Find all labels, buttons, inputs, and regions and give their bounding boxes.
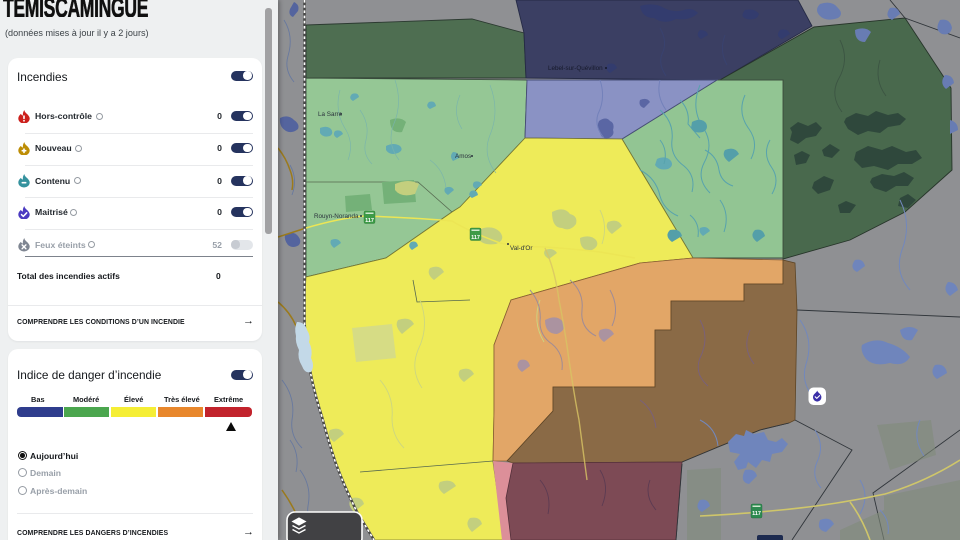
svg-text:Amos: Amos: [455, 153, 471, 160]
svg-text:117: 117: [471, 235, 480, 241]
svg-text:117: 117: [752, 511, 761, 517]
svg-text:La Sarre: La Sarre: [318, 111, 343, 118]
svg-text:Val-d'Or: Val-d'Or: [510, 245, 532, 252]
svg-text:Rouyn-Noranda: Rouyn-Noranda: [314, 213, 359, 220]
svg-text:117: 117: [365, 218, 374, 224]
svg-text:Lebel-sur-Quévillon: Lebel-sur-Quévillon: [548, 65, 603, 72]
